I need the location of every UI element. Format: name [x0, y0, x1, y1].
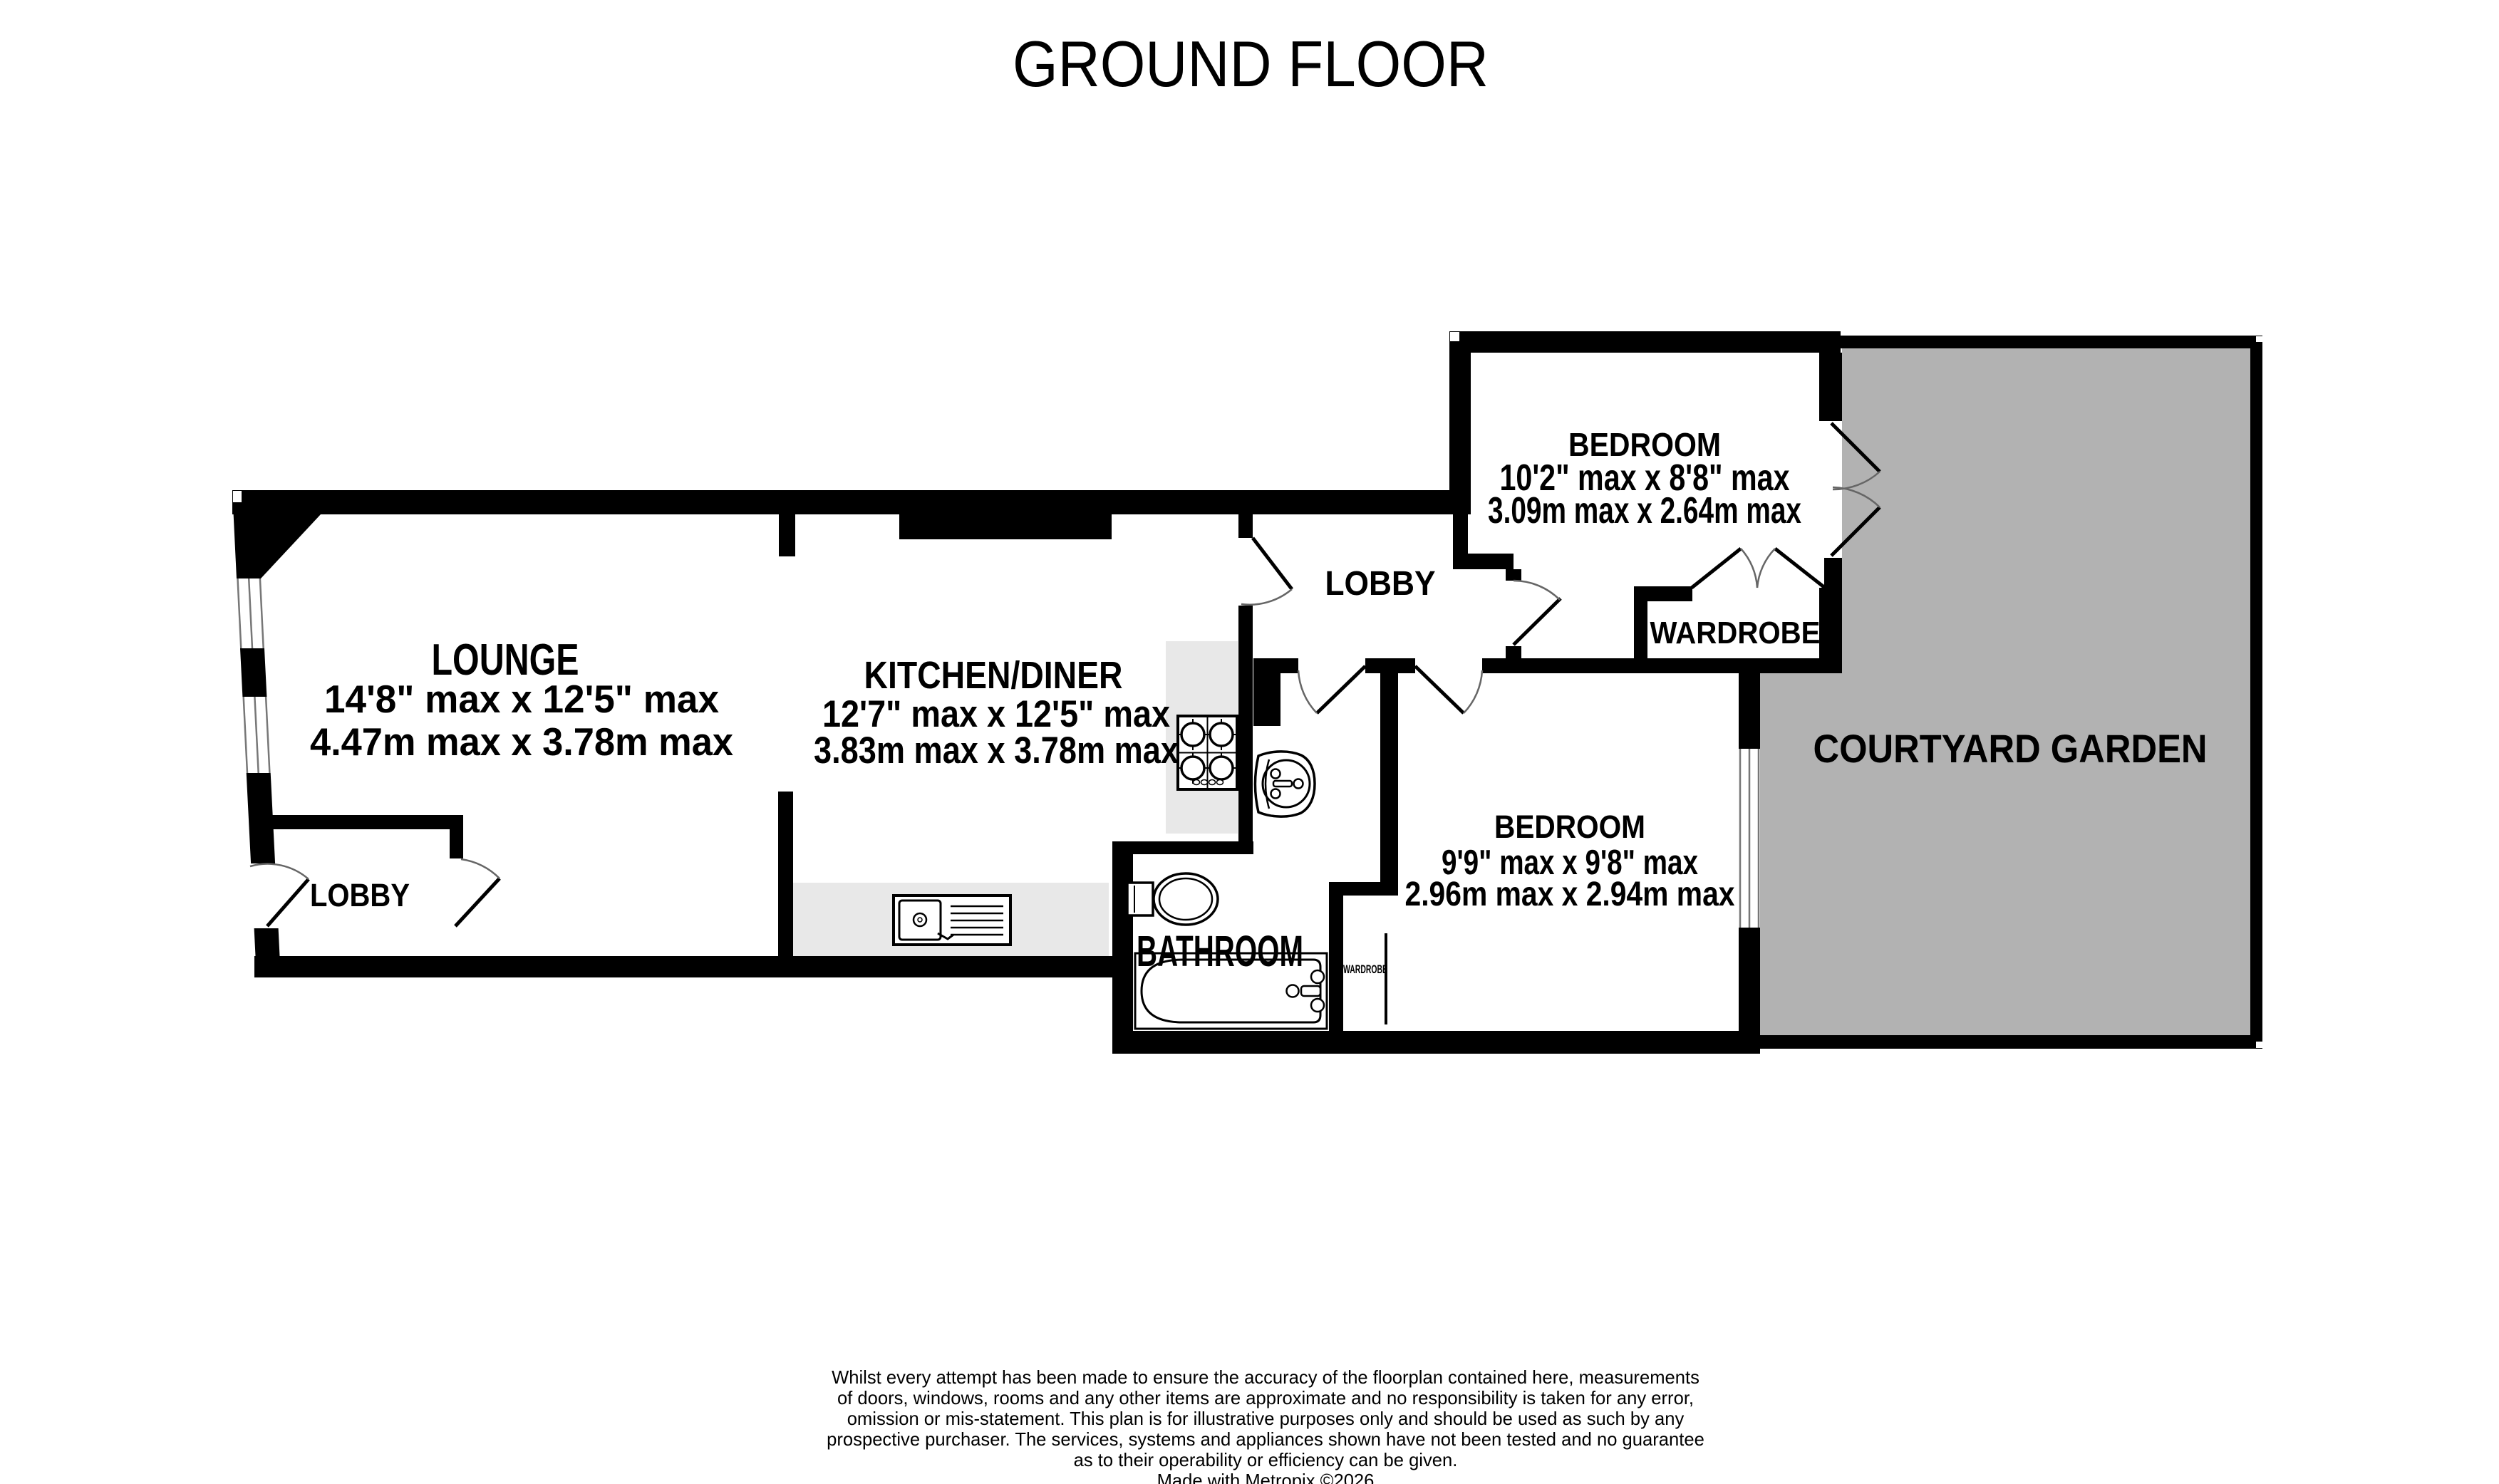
- svg-text:2.96m max x 2.94m max: 2.96m max x 2.94m max: [1405, 876, 1735, 913]
- svg-text:GROUND FLOOR: GROUND FLOOR: [1013, 28, 1489, 100]
- svg-text:WARDROBE: WARDROBE: [1650, 616, 1821, 650]
- svg-text:KITCHEN/DINER: KITCHEN/DINER: [864, 654, 1123, 697]
- svg-text:WARDROBE: WARDROBE: [1343, 962, 1387, 976]
- svg-text:Whilst every attempt has been: Whilst every attempt has been made to en…: [832, 1368, 1699, 1388]
- svg-text:of doors, windows, rooms and a: of doors, windows, rooms and any other i…: [837, 1389, 1694, 1408]
- svg-text:14'8" max x 12'5" max: 14'8" max x 12'5" max: [324, 677, 719, 721]
- svg-text:BATHROOM: BATHROOM: [1137, 927, 1303, 975]
- svg-text:Made with Metropix ©2026: Made with Metropix ©2026: [1157, 1471, 1375, 1484]
- svg-text:3.09m max x 2.64m max: 3.09m max x 2.64m max: [1488, 490, 1801, 531]
- svg-text:BEDROOM: BEDROOM: [1494, 809, 1645, 845]
- svg-text:as to their operability or eff: as to their operability or efficiency ca…: [1074, 1451, 1458, 1470]
- svg-text:3.83m max x 3.78m max: 3.83m max x 3.78m max: [814, 730, 1179, 772]
- svg-text:LOBBY: LOBBY: [310, 877, 410, 913]
- svg-text:omission or mis-statement. Thi: omission or mis-statement. This plan is …: [847, 1409, 1685, 1429]
- svg-text:COURTYARD GARDEN: COURTYARD GARDEN: [1814, 726, 2208, 771]
- svg-text:prospective purchaser. The ser: prospective purchaser. The services, sys…: [827, 1430, 1704, 1450]
- svg-text:LOBBY: LOBBY: [1325, 565, 1436, 603]
- svg-text:4.47m max x 3.78m max: 4.47m max x 3.78m max: [310, 720, 733, 764]
